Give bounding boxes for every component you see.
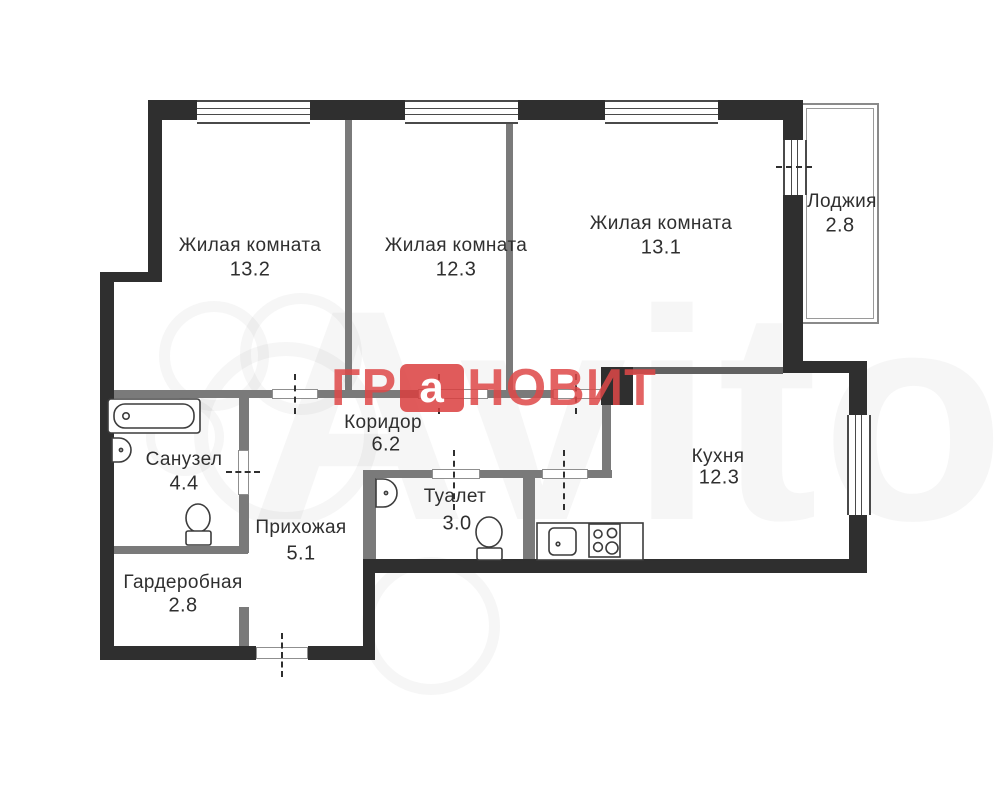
room-label-kitchen: Кухня (692, 446, 745, 468)
room-label-living-3: Жилая комната (590, 213, 732, 235)
room-area-living-1: 13.2 (230, 259, 271, 282)
room-label-wc: Туалет (424, 486, 487, 508)
floor-plan: Avito (0, 0, 998, 788)
logo-boxed-letter: а (419, 366, 444, 410)
room-area-wc: 3.0 (442, 513, 471, 536)
room-area-wardrobe: 2.8 (168, 595, 197, 618)
stove-icon (589, 524, 620, 557)
kitchen-sink-icon (549, 528, 576, 555)
room-label-living-2: Жилая комната (385, 235, 527, 257)
sink-icon (376, 479, 397, 507)
logo-text-right: НОВИТ (467, 364, 657, 412)
logo-letter-box: а (400, 364, 464, 412)
room-label-loggia: Лоджия (807, 191, 877, 213)
granovit-logo: ГР а НОВИТ (331, 364, 657, 412)
room-area-living-2: 12.3 (436, 259, 477, 282)
room-label-bathroom: Санузел (146, 449, 223, 471)
room-area-kitchen: 12.3 (699, 467, 740, 490)
room-label-living-1: Жилая комната (179, 235, 321, 257)
room-label-wardrobe: Гардеробная (123, 572, 242, 594)
kitchen-counter (537, 523, 643, 560)
room-area-corridor: 6.2 (371, 434, 400, 457)
room-label-hallway: Прихожая (255, 517, 346, 539)
room-area-living-3: 13.1 (641, 237, 682, 260)
room-area-hallway: 5.1 (286, 543, 315, 566)
room-area-loggia: 2.8 (825, 215, 854, 238)
toilet-icon (186, 504, 211, 545)
bathtub-icon (108, 399, 200, 433)
logo-text-left: ГР (331, 364, 397, 412)
toilet-icon (476, 517, 502, 560)
room-area-bathroom: 4.4 (169, 473, 198, 496)
sink-icon (112, 438, 131, 462)
